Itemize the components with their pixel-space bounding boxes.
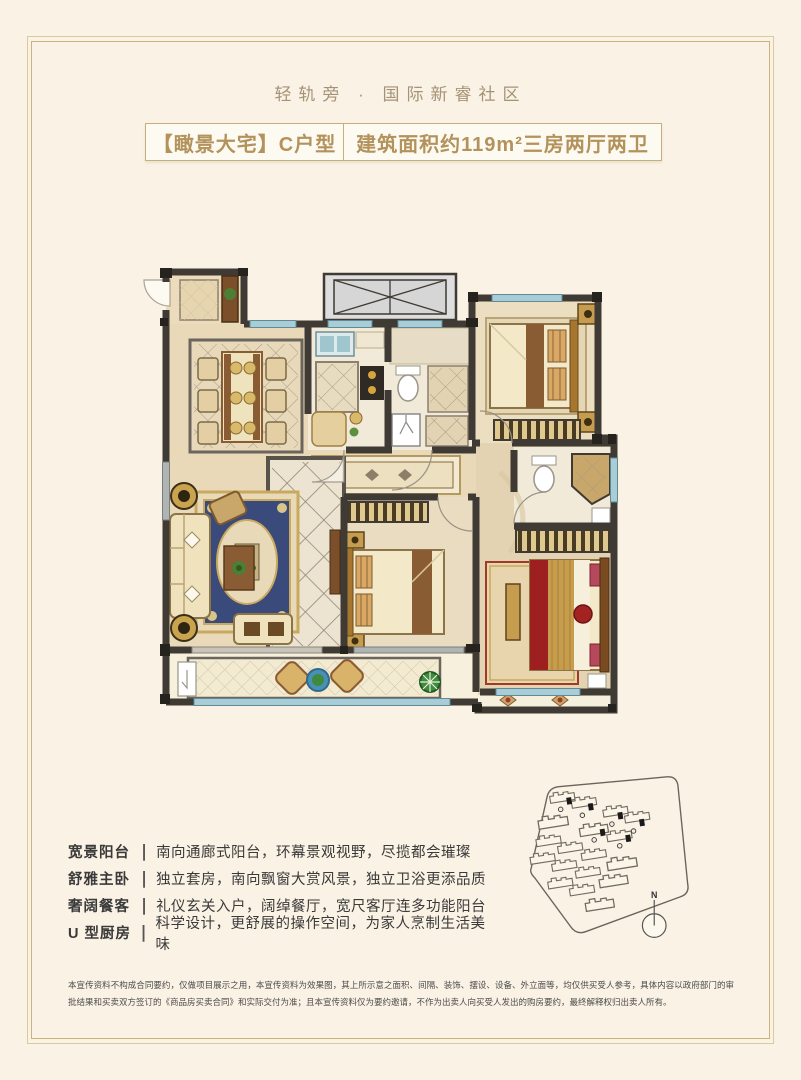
feature-description: 南向通廊式阳台，环幕景观视野，尽揽都会璀璨 xyxy=(156,841,471,862)
feature-separator: | xyxy=(142,869,146,888)
feature-description: 独立套房，南向飘窗大赏风景，独立卫浴更添品质 xyxy=(156,868,486,889)
site-plan: N xyxy=(500,768,710,960)
title-area-info: 建筑面积约119m²三房两厅两卫 xyxy=(344,124,661,160)
feature-separator: | xyxy=(142,896,146,915)
floor-plan xyxy=(140,262,660,718)
disclaimer-text: 本宣传资料不构成合同要约，仅做项目展示之用，本宣传资料为效果图，其上所示意之面积… xyxy=(68,977,734,1010)
balcony xyxy=(178,658,440,698)
compass-icon: N xyxy=(642,890,666,937)
master-bedroom xyxy=(486,558,609,688)
feature-separator: | xyxy=(141,923,145,942)
feature-label: U 型厨房 xyxy=(68,922,139,943)
feature-label: 奢阔餐客 xyxy=(68,895,140,916)
feature-label: 宽景阳台 xyxy=(68,841,140,862)
feature-row: 舒雅主卧 | 独立套房，南向飘窗大赏风景，独立卫浴更添品质 xyxy=(68,865,498,892)
entry-door-icon xyxy=(144,280,170,306)
master-wardrobe xyxy=(516,530,610,552)
bedroom-2 xyxy=(486,304,598,440)
feature-row: U 型厨房 | 科学设计，更舒展的操作空间，为家人烹制生活美味 xyxy=(68,919,498,946)
feature-list: 宽景阳台 | 南向通廊式阳台，环幕景观视野，尽揽都会璀璨 舒雅主卧 | 独立套房… xyxy=(68,838,498,946)
feature-row: 宽景阳台 | 南向通廊式阳台，环幕景观视野，尽揽都会璀璨 xyxy=(68,838,498,865)
ac-platform xyxy=(324,274,456,320)
feature-separator: | xyxy=(142,842,146,861)
title-bar: 【瞰景大宅】C户型 建筑面积约119m²三房两厅两卫 xyxy=(145,123,662,161)
feature-label: 舒雅主卧 xyxy=(68,868,140,889)
feature-description: 科学设计，更舒展的操作空间，为家人烹制生活美味 xyxy=(156,912,498,954)
dining-room xyxy=(190,340,302,452)
compass-north-label: N xyxy=(651,890,657,900)
entry-foyer xyxy=(180,276,238,322)
bathroom xyxy=(390,328,470,446)
header-tagline: 轻轨旁 · 国际新睿社区 xyxy=(0,80,801,105)
title-unit-type: 【瞰景大宅】C户型 xyxy=(146,124,344,160)
